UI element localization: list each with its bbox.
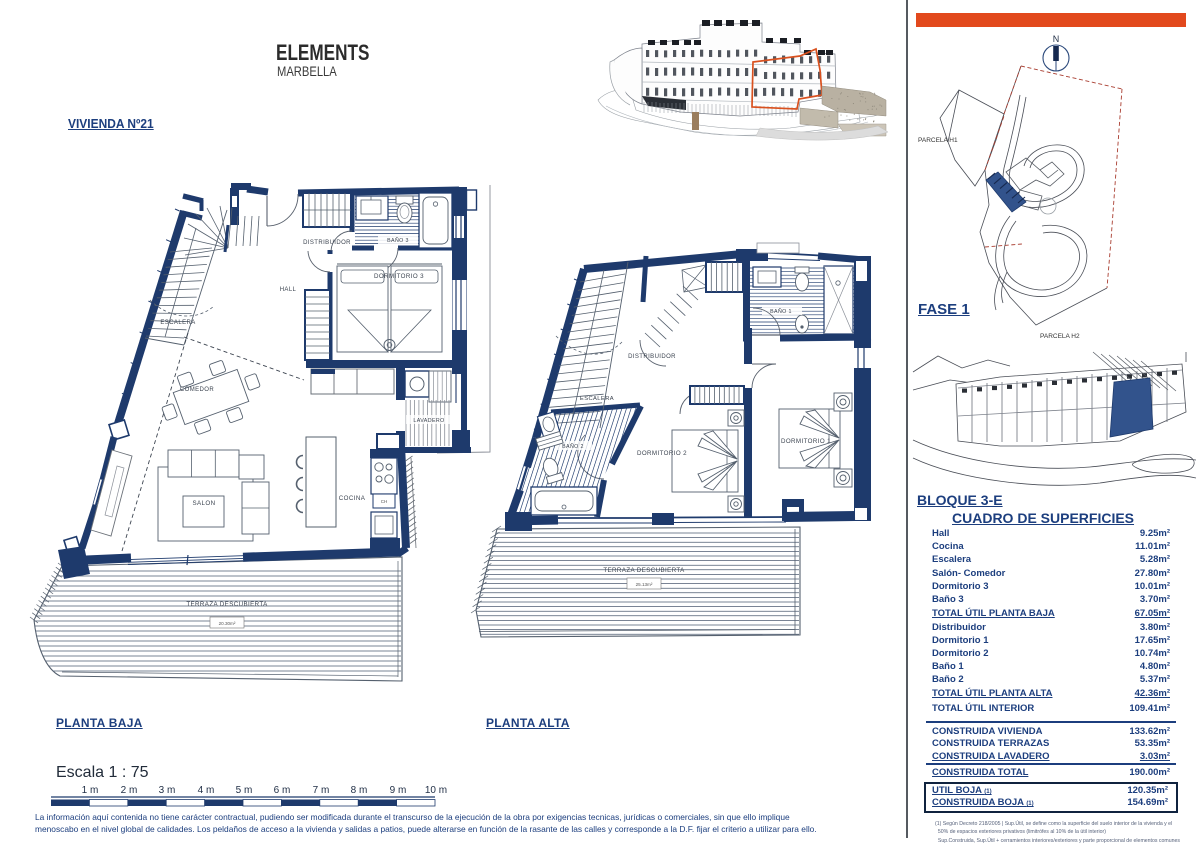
svg-text:COCINA: COCINA	[339, 495, 366, 502]
svg-text:20.30m²: 20.30m²	[219, 621, 236, 626]
svg-text:BAÑO 1: BAÑO 1	[770, 308, 792, 315]
svg-text:1 m: 1 m	[82, 785, 99, 796]
svg-text:2 m: 2 m	[121, 785, 138, 796]
svg-text:25.13m²: 25.13m²	[636, 582, 653, 587]
svg-text:8 m: 8 m	[351, 785, 368, 796]
svg-text:4 m: 4 m	[198, 785, 215, 796]
svg-text:7 m: 7 m	[313, 785, 330, 796]
svg-text:6 m: 6 m	[274, 785, 291, 796]
svg-text:TERRAZA DESCUBIERTA: TERRAZA DESCUBIERTA	[186, 601, 268, 608]
svg-text:3 m: 3 m	[159, 785, 176, 796]
svg-text:BAÑO 3: BAÑO 3	[387, 237, 409, 244]
svg-text:ESCALERA: ESCALERA	[160, 320, 195, 326]
svg-text:DORMITORIO 3: DORMITORIO 3	[374, 273, 424, 280]
svg-text:5 m: 5 m	[236, 785, 253, 796]
svg-text:N: N	[1053, 34, 1060, 44]
svg-text:DISTRIBUIDOR: DISTRIBUIDOR	[628, 354, 676, 360]
svg-text:TERRAZA DESCUBIERTA: TERRAZA DESCUBIERTA	[603, 567, 685, 574]
svg-text:SALON: SALON	[193, 500, 216, 507]
svg-text:CH: CH	[381, 499, 388, 504]
svg-text:DORMITORIO 1: DORMITORIO 1	[781, 438, 831, 445]
svg-text:BAÑO 2: BAÑO 2	[562, 443, 584, 450]
svg-text:10 m: 10 m	[425, 785, 447, 796]
svg-text:9 m: 9 m	[390, 785, 407, 796]
svg-text:DISTRIBUIDOR: DISTRIBUIDOR	[303, 240, 351, 246]
svg-text:LAVADERO: LAVADERO	[413, 418, 444, 424]
svg-text:DORMITORIO 2: DORMITORIO 2	[637, 450, 687, 457]
svg-text:HALL: HALL	[280, 287, 297, 293]
svg-text:COMEDOR: COMEDOR	[180, 387, 214, 393]
svg-text:ESCALERA: ESCALERA	[580, 396, 614, 402]
